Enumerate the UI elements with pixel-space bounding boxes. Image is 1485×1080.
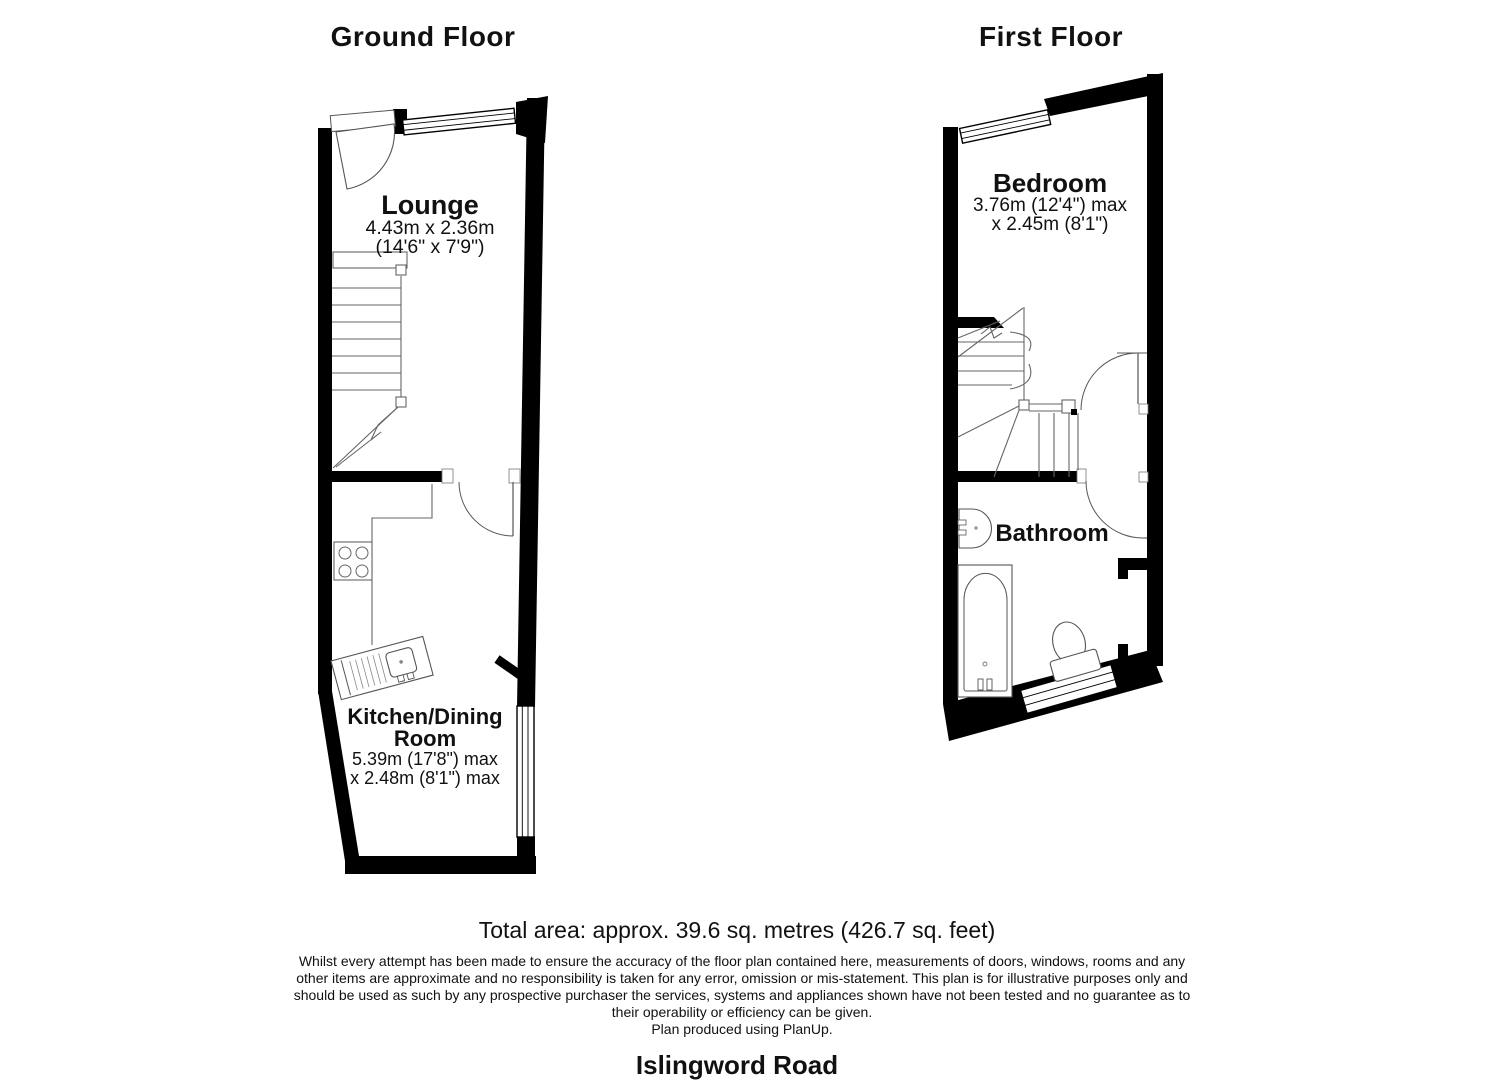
kitchen-sink-unit (331, 636, 433, 699)
gf-bottom-right-corner (517, 836, 535, 874)
kitchen-name-line2: Room (347, 728, 502, 750)
bedroom-dim-line2: x 2.45m (8'1") (973, 215, 1127, 234)
gf-stair-newel-top (396, 265, 406, 275)
bedroom-room-label: Bedroom 3.76m (12'4") max x 2.45m (8'1") (973, 171, 1127, 234)
gf-right-wall (517, 98, 545, 707)
bathroom-sink (958, 509, 992, 548)
disclaimer-line: their operability or efficiency can be g… (252, 1004, 1232, 1021)
bathroom-room-label: Bathroom (995, 520, 1108, 548)
plan-credit: Plan produced using PlanUp. (252, 1021, 1232, 1038)
gf-bottom-wall (345, 856, 536, 874)
disclaimer-line: Whilst every attempt has been made to en… (252, 953, 1232, 970)
ff-stair-cut-curve-2 (1010, 364, 1031, 389)
ff-stair-winder-lines (958, 405, 1021, 477)
ff-bedroom-door-swing (1081, 353, 1138, 410)
ff-stair-treads (958, 342, 1024, 385)
gf-stair-treads (332, 288, 401, 390)
ff-stair-break-zigzag (981, 327, 1002, 338)
ff-bedroom-door (1081, 353, 1147, 410)
lounge-name: Lounge (366, 192, 495, 219)
ff-right-wall (1147, 74, 1163, 666)
stove (334, 542, 372, 580)
ff-stair-rail (1029, 404, 1062, 411)
lounge-dim-imperial: (14'6" x 7'9") (366, 238, 495, 257)
first-floor-title: First Floor (979, 21, 1123, 53)
ff-bathroom-wall (945, 471, 1077, 482)
ff-left-wall (943, 127, 958, 704)
ff-stair-newel-left (1019, 400, 1029, 410)
lounge-room-label: Lounge 4.43m x 2.36m (14'6" x 7'9") (366, 192, 495, 257)
total-area-text: Total area: approx. 39.6 sq. metres (426… (479, 917, 996, 944)
ground-floor-title: Ground Floor (331, 21, 516, 53)
ff-stair-lower-treads (1039, 413, 1078, 477)
gf-stair-break-line (336, 407, 398, 467)
gf-staircase (332, 252, 407, 468)
gf-stair-newel-bottom (396, 397, 406, 407)
kitchen-room-label: Kitchen/Dining Room 5.39m (17'8") max x … (347, 706, 502, 788)
kitchen-name-line1: Kitchen/Dining (347, 706, 502, 728)
disclaimer-line: other items are approximate and no respo… (252, 970, 1232, 987)
bathtub (958, 565, 1012, 697)
ff-top-diagonal-wall (1044, 73, 1163, 116)
gf-left-wall (318, 128, 332, 694)
ff-bathroom-door-jamb-left (1077, 469, 1086, 483)
ff-staircase (958, 307, 1078, 477)
disclaimer-text: Whilst every attempt has been made to en… (252, 953, 1232, 1038)
kitchen-dim-line2: x 2.48m (8'1") max (347, 769, 502, 788)
gf-door-jamb-right (509, 469, 520, 483)
address-title: Islingword Road (636, 1050, 838, 1080)
gf-top-right-corner (516, 96, 548, 143)
kitchen-counter (372, 484, 432, 645)
disclaimer-line: should be used as such by any prospectiv… (252, 987, 1232, 1004)
gf-inner-wall (319, 471, 443, 482)
gf-kitchen-door-swing (459, 482, 513, 536)
gf-kitchen-window (517, 706, 534, 837)
gf-door-jamb-left (442, 469, 453, 483)
ff-recess-stub-top-cap (1118, 558, 1128, 579)
ff-bedroom-door-jamb (1139, 404, 1148, 414)
bedroom-dim-line1: 3.76m (12'4") max (973, 196, 1127, 215)
gf-kitchen-door (459, 482, 513, 536)
kitchen-dim-line1: 5.39m (17'8") max (347, 750, 502, 769)
floor-plan-page: Ground Floor First Floor Lounge 4.43m x … (0, 0, 1485, 1080)
gf-wall-nib (497, 659, 520, 675)
bedroom-name: Bedroom (973, 171, 1127, 196)
gf-lounge-window (403, 108, 516, 135)
ff-bedroom-window (960, 110, 1051, 143)
gf-entrance-door-swing (336, 124, 395, 189)
ff-bathroom-door-jamb-right (1139, 472, 1148, 482)
